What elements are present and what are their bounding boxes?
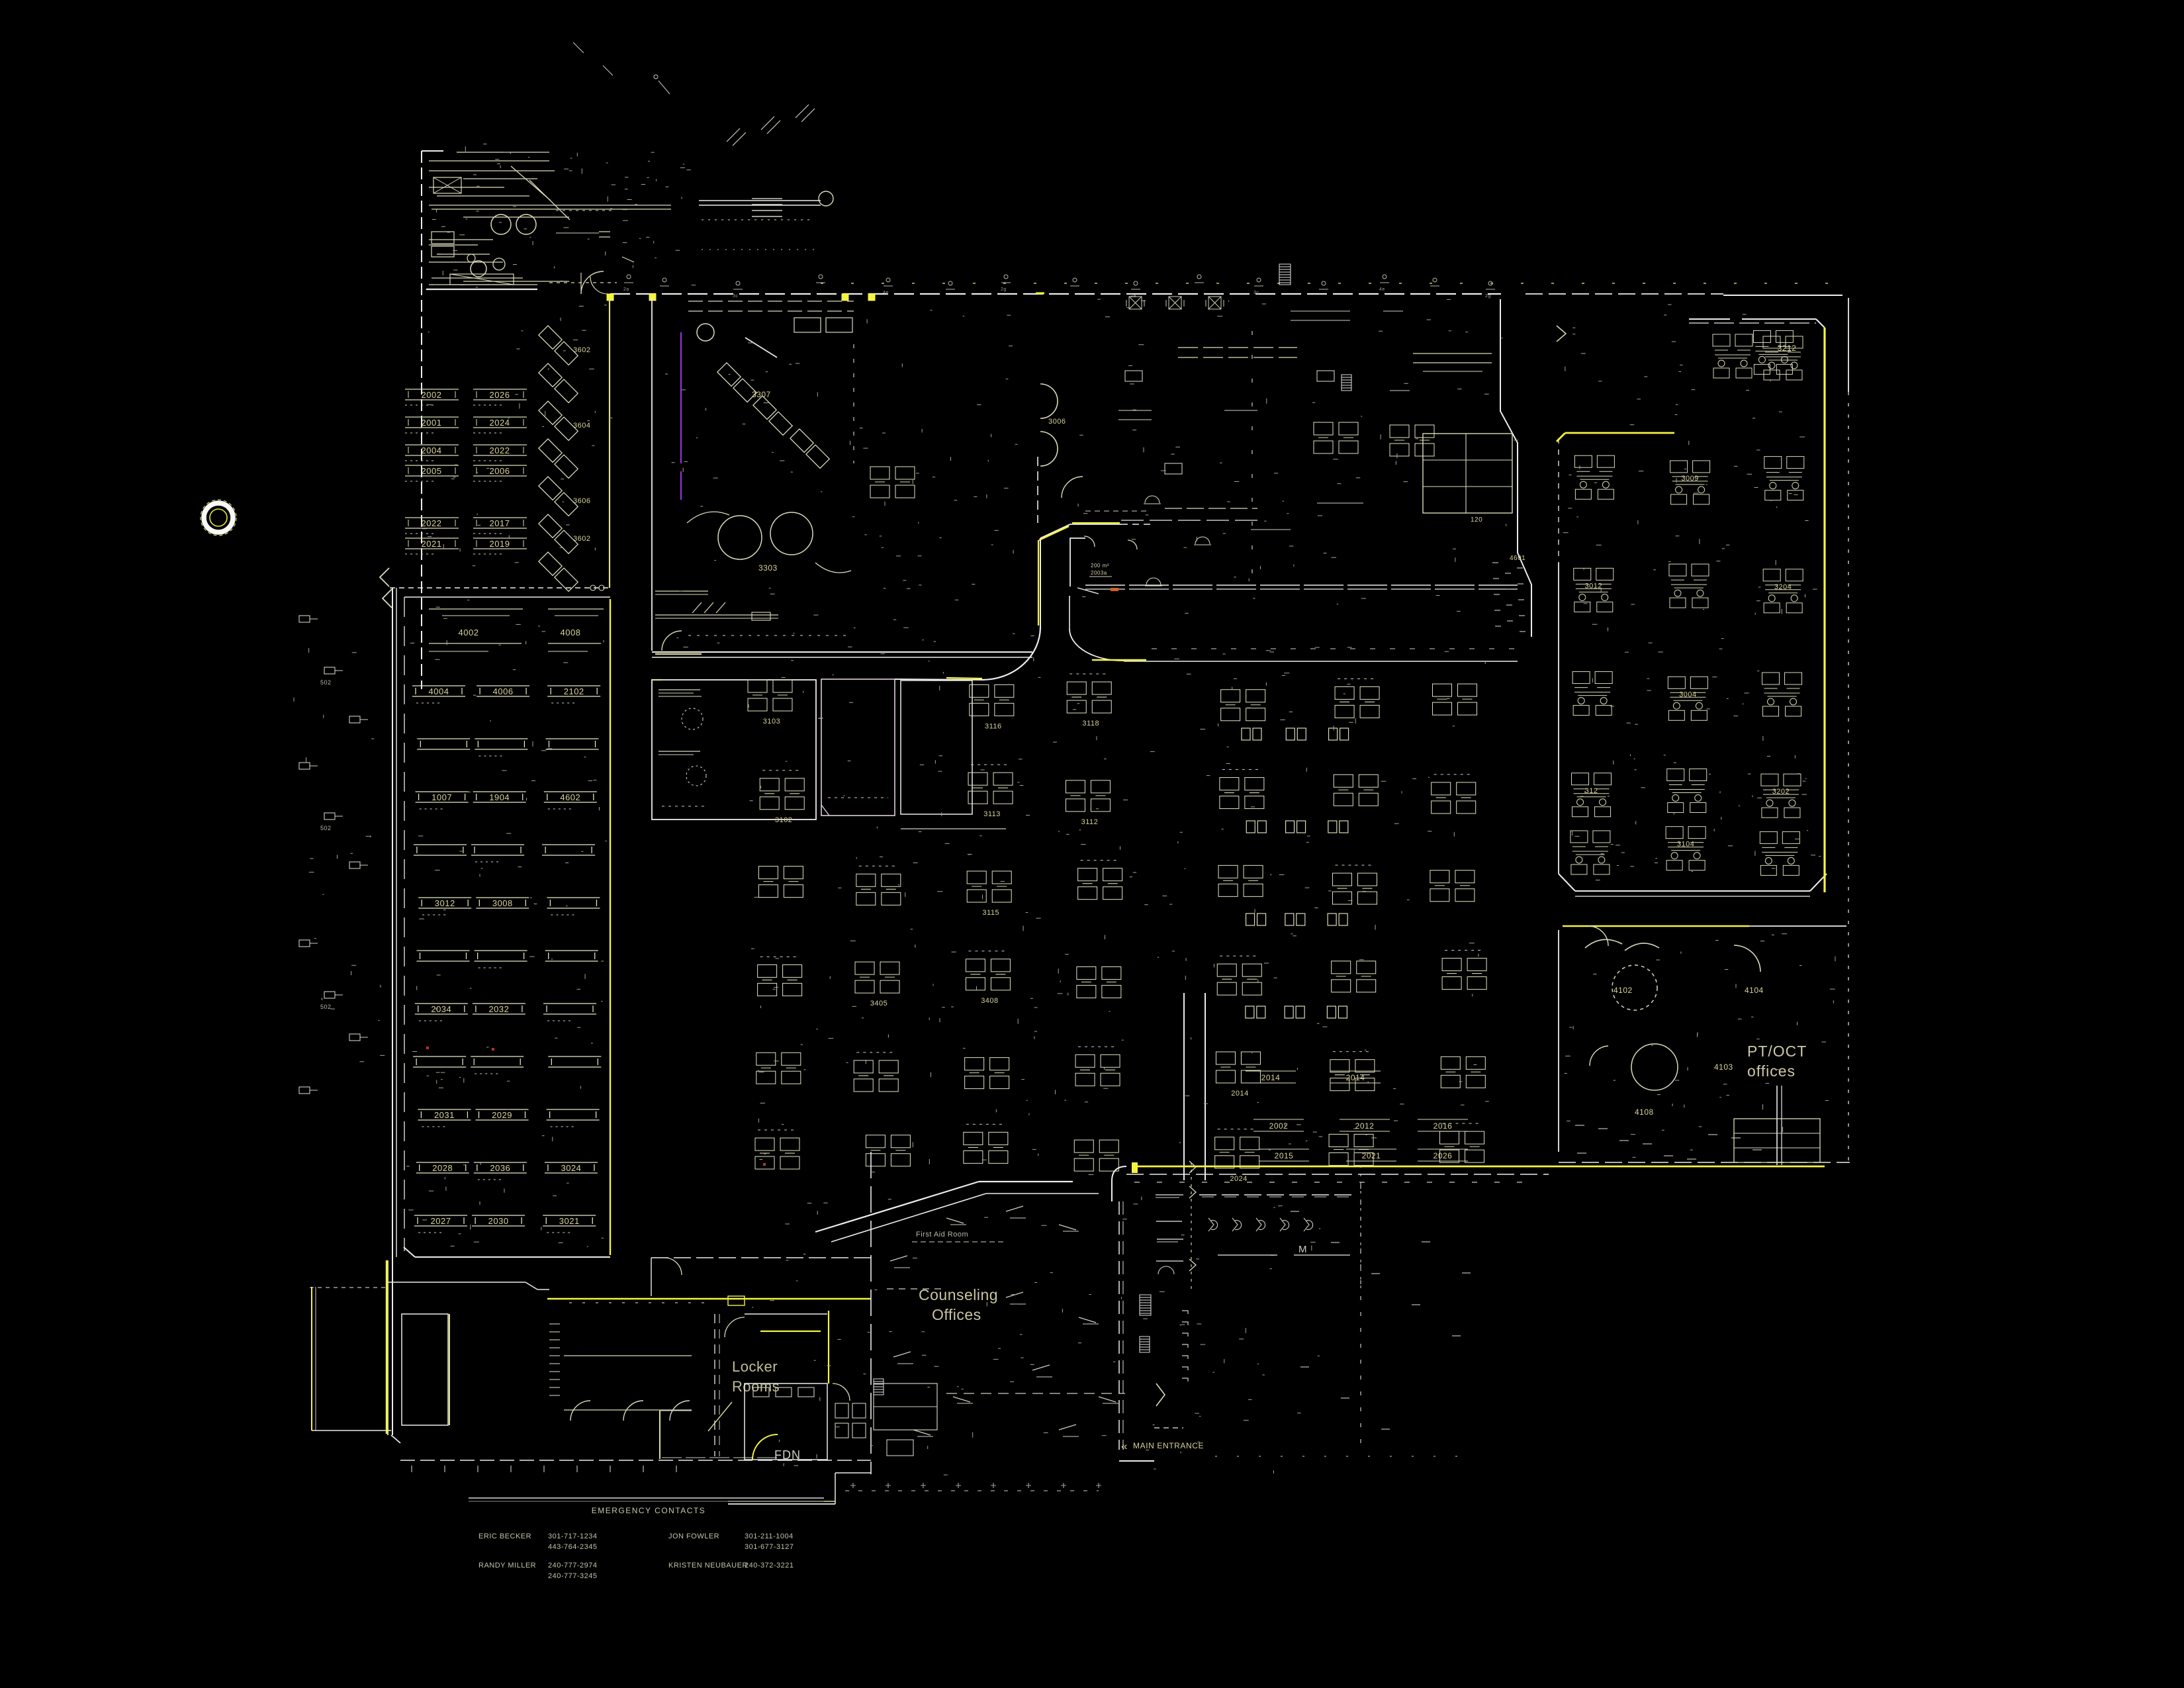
svg-text:2a: 2a xyxy=(623,287,629,292)
svg-text:4108: 4108 xyxy=(1635,1107,1654,1117)
svg-text:2004: 2004 xyxy=(422,445,442,455)
svg-text:3009: 3009 xyxy=(1681,475,1698,483)
svg-text:ERIC BECKER: ERIC BECKER xyxy=(478,1532,531,1540)
svg-text:MAIN ENTRANCE: MAIN ENTRANCE xyxy=(1133,1441,1204,1450)
svg-text:3112: 3112 xyxy=(1081,818,1099,826)
svg-text:2005: 2005 xyxy=(422,466,442,476)
svg-text:2g: 2g xyxy=(1001,287,1007,292)
svg-text:3204: 3204 xyxy=(1774,583,1792,591)
svg-text:3c: 3c xyxy=(1253,291,1259,295)
svg-text:301-717-1234: 301-717-1234 xyxy=(548,1532,598,1540)
svg-text:PT/OCT: PT/OCT xyxy=(1747,1043,1807,1060)
svg-text:2027: 2027 xyxy=(431,1216,451,1226)
svg-text:3303: 3303 xyxy=(758,563,778,573)
svg-text:3012: 3012 xyxy=(435,898,455,908)
svg-text:Counseling: Counseling xyxy=(919,1286,998,1303)
svg-text:3202: 3202 xyxy=(1772,788,1790,796)
svg-text:4002: 4002 xyxy=(459,628,479,637)
svg-text:4008: 4008 xyxy=(561,628,581,637)
svg-text:3405: 3405 xyxy=(870,1000,887,1008)
svg-text:301-677-3127: 301-677-3127 xyxy=(745,1543,794,1551)
svg-text:4e: 4e xyxy=(883,291,889,295)
svg-text:2001: 2001 xyxy=(422,418,442,428)
svg-text:2014: 2014 xyxy=(1346,1073,1365,1082)
svg-text:2014: 2014 xyxy=(1261,1073,1281,1082)
svg-text:3307: 3307 xyxy=(752,390,771,399)
svg-text:2024: 2024 xyxy=(490,418,510,428)
svg-text:2g: 2g xyxy=(1485,294,1491,299)
svg-text:Offices: Offices xyxy=(932,1306,981,1323)
svg-text:3012: 3012 xyxy=(1585,582,1602,590)
svg-text:200 m²: 200 m² xyxy=(1091,563,1109,569)
svg-text:2022: 2022 xyxy=(422,518,442,528)
svg-text:1904: 1904 xyxy=(489,792,510,802)
svg-text:120: 120 xyxy=(1471,516,1482,524)
svg-text:4601: 4601 xyxy=(1510,555,1525,562)
svg-text:3115: 3115 xyxy=(982,909,999,917)
svg-text:502: 502 xyxy=(320,679,332,686)
svg-text:Rooms: Rooms xyxy=(732,1378,780,1395)
svg-text:offices: offices xyxy=(1747,1062,1796,1080)
svg-text:2036: 2036 xyxy=(490,1163,510,1173)
svg-text:2028: 2028 xyxy=(432,1163,453,1173)
svg-text:2031: 2031 xyxy=(434,1110,455,1120)
svg-text:RANDY MILLER: RANDY MILLER xyxy=(478,1562,536,1570)
svg-text:3113: 3113 xyxy=(983,810,1001,818)
svg-text:KRISTEN NEUBAUER: KRISTEN NEUBAUER xyxy=(668,1562,748,1570)
svg-text:2026: 2026 xyxy=(1433,1151,1453,1160)
svg-text:2012: 2012 xyxy=(1355,1121,1375,1131)
svg-text:443-764-2345: 443-764-2345 xyxy=(548,1543,598,1551)
svg-text:3602: 3602 xyxy=(573,346,590,354)
svg-text:4104: 4104 xyxy=(1745,986,1764,995)
svg-text:2002: 2002 xyxy=(422,390,442,400)
svg-text:3104: 3104 xyxy=(1677,841,1694,849)
svg-text:1007: 1007 xyxy=(432,792,452,802)
svg-text:2021: 2021 xyxy=(1362,1151,1381,1160)
svg-text:3102: 3102 xyxy=(775,816,792,824)
svg-text:4103: 4103 xyxy=(1714,1062,1733,1072)
svg-text:2015: 2015 xyxy=(1275,1151,1294,1160)
svg-text:«: « xyxy=(1121,1440,1128,1452)
svg-text:2034: 2034 xyxy=(431,1004,451,1014)
svg-text:2102: 2102 xyxy=(564,686,584,696)
svg-text:3021: 3021 xyxy=(559,1216,580,1226)
svg-text:3408: 3408 xyxy=(981,997,998,1005)
svg-text:2014: 2014 xyxy=(1231,1090,1248,1098)
svg-text:2017: 2017 xyxy=(490,518,510,528)
svg-text:3006: 3006 xyxy=(1048,418,1066,426)
svg-text:3024: 3024 xyxy=(561,1163,581,1173)
svg-text:2024: 2024 xyxy=(1230,1175,1247,1183)
svg-text:3c: 3c xyxy=(733,294,738,299)
svg-text:4602: 4602 xyxy=(560,792,580,802)
svg-text:3604: 3604 xyxy=(573,422,590,430)
svg-text:2032: 2032 xyxy=(488,1004,509,1014)
svg-text:4102: 4102 xyxy=(1614,986,1633,995)
svg-text:2016: 2016 xyxy=(1433,1121,1453,1131)
svg-text:240-372-3221: 240-372-3221 xyxy=(745,1562,794,1570)
svg-text:2019: 2019 xyxy=(490,539,510,549)
svg-text:240-777-2974: 240-777-2974 xyxy=(548,1562,598,1570)
svg-text:3004: 3004 xyxy=(1679,690,1696,698)
svg-text:3602: 3602 xyxy=(573,535,590,543)
svg-text:502: 502 xyxy=(320,1004,332,1010)
svg-text:JON FOWLER: JON FOWLER xyxy=(668,1532,719,1540)
svg-text:2030: 2030 xyxy=(488,1216,509,1226)
svg-text:First Aid Room: First Aid Room xyxy=(916,1231,968,1239)
svg-text:3103: 3103 xyxy=(763,718,780,726)
svg-text:2026: 2026 xyxy=(490,390,510,400)
svg-text:M: M xyxy=(1298,1244,1307,1255)
svg-text:2021: 2021 xyxy=(422,539,442,549)
svg-text:4004: 4004 xyxy=(429,686,449,696)
svg-text:2006: 2006 xyxy=(490,466,510,476)
svg-text:4e: 4e xyxy=(1379,287,1385,292)
svg-text:3118: 3118 xyxy=(1082,720,1099,727)
svg-text:3116: 3116 xyxy=(985,722,1002,730)
svg-text:2003a: 2003a xyxy=(1091,570,1107,576)
svg-text:3606: 3606 xyxy=(573,497,590,505)
svg-text:FDN: FDN xyxy=(774,1448,801,1462)
svg-text:240-777-3245: 240-777-3245 xyxy=(548,1572,598,1580)
svg-text:4006: 4006 xyxy=(493,686,514,696)
svg-text:2029: 2029 xyxy=(492,1110,512,1120)
svg-text:312: 312 xyxy=(1585,787,1598,795)
svg-text:3008: 3008 xyxy=(492,898,513,908)
svg-text:Locker: Locker xyxy=(732,1358,778,1375)
svg-text:301-211-1004: 301-211-1004 xyxy=(745,1532,794,1540)
svg-text:EMERGENCY CONTACTS: EMERGENCY CONTACTS xyxy=(592,1506,706,1515)
svg-text:502: 502 xyxy=(320,825,332,831)
svg-text:2022: 2022 xyxy=(490,445,510,455)
